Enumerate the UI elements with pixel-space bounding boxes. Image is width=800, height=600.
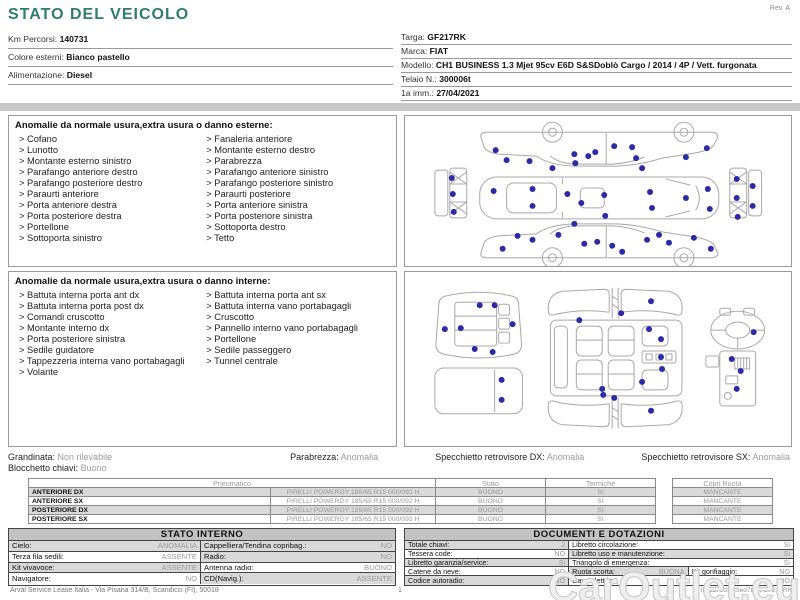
damage-dot: [457, 325, 463, 331]
field-row: Telaio N.: 300006t: [401, 73, 792, 87]
field-pair: Terza fila sedili:ASSENTE: [9, 552, 201, 562]
damage-dot: [529, 237, 535, 243]
cell-label: Navigatore:: [12, 574, 51, 583]
panel-title: Anomalie da normale usura,extra usura o …: [15, 120, 390, 131]
anomaly-item: Portellone: [206, 334, 389, 345]
exterior-anomaly-lists: Cofano Lunotto Montante esterno sinistro…: [15, 134, 390, 244]
damage-dot: [600, 392, 606, 398]
wheel-cover: MANCANTE: [673, 506, 773, 515]
anomaly-item: Porta anteriore destra: [19, 200, 202, 211]
field-row: Alimentazione: Diesel: [8, 67, 393, 85]
summary-stack: Grandinata: Non rilevabile Blocchetto ch…: [8, 452, 233, 473]
damage-dot: [490, 188, 496, 194]
exterior-damage-diagram: [405, 116, 792, 266]
field-row: Modello: CH1 BUSINESS 1.3 Mjet 95cv E6D …: [401, 59, 792, 73]
damage-dot: [690, 235, 696, 241]
interior-anomalies-panel: Anomalie da normale usura,extra usura o …: [8, 271, 397, 447]
vehicle-fields: Km Percorsi: 140731 Colore esterni: Bian…: [8, 31, 792, 101]
cell-label: Cielo:: [12, 541, 31, 550]
damage-dot: [706, 206, 712, 212]
field-label: Modello:: [401, 60, 433, 70]
damage-dot: [609, 243, 615, 249]
damage-dot: [514, 233, 520, 239]
tyre-col-header: Termiche: [546, 479, 656, 488]
damage-dot: [564, 191, 570, 197]
stato-interno-table: STATO INTERNO Cielo:ANOMALIA Cappelliera…: [8, 528, 396, 586]
summary-value: Buono: [81, 463, 107, 473]
damage-dot: [682, 154, 688, 160]
table-row: Tessera code:NO Libretto uso e manutenzi…: [405, 550, 793, 559]
condition-summary: Grandinata: Non rilevabile Blocchetto ch…: [0, 447, 800, 473]
damage-dot: [571, 151, 577, 157]
interior-anomaly-col2: Battuta interna porta ant sx Battuta int…: [202, 290, 389, 378]
revision-label: Rev. A: [770, 5, 790, 12]
tyre-col-header: Copri Ruota: [673, 479, 773, 488]
anomaly-item: Fanaleria anteriore: [206, 134, 389, 145]
table-row: Terza fila sedili:ASSENTE Radio:NO: [9, 552, 395, 563]
field-pair: Cappelliera/Tendina copribag.:NO: [201, 541, 395, 551]
tyre-status: BUONO: [436, 497, 546, 506]
damage-dot: [749, 203, 755, 209]
cell-label: Catene da neve:: [408, 567, 461, 575]
damage-dot: [448, 175, 454, 181]
cell-value: NO: [550, 576, 565, 585]
damage-dot: [601, 192, 607, 198]
cell-label: Libretto uso e manutenzione:: [572, 550, 665, 558]
tyre-spec: PIRELLI POWERGY 185/65 R15 000/092 H: [271, 497, 436, 506]
exterior-anomaly-col1: Cofano Lunotto Montante esterno sinistro…: [15, 134, 202, 244]
tyre-table: Pneumatico Stato Termiche ANTERIORE DX P…: [28, 478, 772, 524]
damage-dot: [491, 302, 497, 308]
cell-label: Tessera code:: [408, 550, 453, 558]
damage-dot: [476, 302, 482, 308]
cell-label: Radio:: [204, 552, 226, 561]
summary-label: Blocchetto chiavi:: [8, 463, 78, 473]
damage-dot: [750, 329, 756, 335]
cell-value: NO: [775, 576, 790, 585]
damage-dot: [498, 397, 504, 403]
page-title: STATO DEL VEICOLO: [8, 6, 792, 24]
field-value: 27/04/2021: [436, 88, 479, 98]
anomaly-item: Battuta interna vano portabagagli: [206, 301, 389, 312]
damage-dot: [733, 176, 739, 182]
field-pair: Navigatore:NO: [9, 573, 201, 584]
damage-dot: [629, 144, 635, 150]
panel-title: Anomalie da normale usura,extra usura o …: [15, 276, 390, 287]
anomaly-item: Montante interno dx: [19, 323, 202, 334]
tyre-spec: PIRELLI POWERGY 185/65 R15 000/092 H: [271, 515, 436, 524]
summary-label: Grandinata:: [8, 452, 55, 462]
tyre-table-main: Pneumatico Stato Termiche ANTERIORE DX P…: [28, 478, 656, 524]
vehicle-condition-report: STATO DEL VEICOLO Rev. A Km Percorsi: 14…: [0, 0, 800, 600]
tyre-status: BUONO: [436, 515, 546, 524]
cell-label: Cappelliera/Tendina copribag.:: [204, 541, 307, 550]
damage-dot: [618, 310, 624, 316]
footer-company: Arval Service Lease Italia - Via Pisana …: [10, 587, 219, 594]
field-value: 140731: [60, 34, 89, 44]
field-label: 1a imm.:: [401, 88, 434, 98]
tyre-spec: PIRELLI POWERGY 185/65 R15 000/092 H: [271, 506, 436, 515]
cell-value: NO: [182, 574, 197, 583]
cell-value: ANOMALIA: [154, 541, 197, 550]
summary-item: Blocchetto chiavi: Buono: [8, 463, 233, 474]
damage-dot: [489, 349, 495, 355]
anomaly-item: Parafango posteriore sinistro: [206, 178, 389, 189]
field-pair: Codice autoradio:NO: [405, 576, 569, 585]
cell-value: NO: [550, 550, 565, 558]
damage-dot: [682, 195, 688, 201]
cell-label: Libretto circolazione:: [572, 541, 638, 549]
damage-dot: [509, 321, 515, 327]
exterior-diagram-box: [404, 115, 793, 267]
damage-dot: [648, 298, 654, 304]
cell-value: BUONA: [655, 567, 685, 575]
field-row: 1a imm.: 27/04/2021: [401, 87, 792, 101]
field-row: Colore esterni: Bianco pastello: [8, 49, 393, 67]
bottom-tables: STATO INTERNO Cielo:ANOMALIA Cappelliera…: [8, 528, 792, 586]
anomaly-item: Parabrezza: [206, 156, 389, 167]
field-value: 300006t: [439, 74, 471, 84]
damage-dot: [572, 160, 578, 166]
damage-dot: [639, 379, 645, 385]
anomaly-item: Comandi cruscotto: [19, 312, 202, 323]
section-title: STATO INTERNO: [9, 529, 395, 541]
interior-diagram-box: [404, 271, 793, 447]
damage-dot: [633, 155, 639, 161]
cell-value: NO: [775, 567, 790, 575]
anomaly-item: Parafango anteriore sinistro: [206, 167, 389, 178]
damage-dot: [529, 186, 535, 192]
anomaly-item: Tunnel centrale: [206, 356, 389, 367]
damage-dot: [733, 195, 739, 201]
documenti-dotazioni-table: DOCUMENTI E DOTAZIONI Totale chiavi:2 Li…: [404, 528, 794, 586]
summary-item: Specchietto retrovisore DX: Anomalia: [435, 452, 584, 473]
damage-dot: [646, 326, 652, 332]
damage-dot: [571, 221, 577, 227]
cell-value: NO: [550, 567, 565, 575]
field-pair: Cielo:ANOMALIA: [9, 541, 201, 551]
field-pair: Kit gonfiaggio:NO: [689, 567, 793, 575]
wheel-cover: MANCANTE: [673, 497, 773, 506]
interior-anomaly-lists: Battuta interna porta ant dx Battuta int…: [15, 290, 390, 378]
anomaly-item: Cofano: [19, 134, 202, 145]
cell-value: Si: [555, 559, 565, 567]
field-pair: Libretto garanzia/service:Si: [405, 559, 569, 567]
field-pair: Ruota scorta:BUONA: [569, 567, 688, 575]
anomaly-item: Porta posteriore sinistra: [19, 334, 202, 345]
interior-anomaly-col1: Battuta interna porta ant dx Battuta int…: [15, 290, 202, 378]
field-pair: Tessera code:NO: [405, 550, 569, 558]
wheel-cover: MANCANTE: [673, 488, 773, 497]
cell-value: Si: [780, 559, 790, 567]
summary-value: Anomalia: [341, 452, 379, 462]
cell-value: BUONO: [360, 563, 392, 572]
damage-dot: [659, 366, 665, 372]
field-value: CH1 BUSINESS 1.3 Mjet 95cv E6D S&SDoblò …: [436, 60, 757, 70]
field-row: Km Percorsi: 140731: [8, 31, 393, 49]
damage-dot: [647, 189, 653, 195]
anomaly-item: Battuta interna porta post dx: [19, 301, 202, 312]
field-pair: Catene da neve:NO: [405, 567, 569, 575]
summary-value: Non rilevabile: [58, 452, 113, 462]
cell-label: Cavo elettrico:: [572, 576, 618, 585]
cell-label: Terza fila sedili:: [12, 552, 64, 561]
cell-value: Si: [780, 541, 790, 549]
field-label: Marca:: [401, 46, 427, 56]
damage-dot: [602, 213, 608, 219]
anomaly-item: Parafango posteriore destro: [19, 178, 202, 189]
anomaly-item: Sottoporta sinistro: [19, 233, 202, 244]
exterior-anomalies-panel: Anomalie da normale usura,extra usura o …: [8, 115, 397, 267]
cell-value: ASSENTE: [158, 563, 197, 572]
anomaly-item: Cruscotto: [206, 312, 389, 323]
cell-label: Triangolo di emergenza:: [572, 559, 649, 567]
damage-dot: [707, 246, 713, 252]
anomaly-item: Battuta interna porta ant sx: [206, 290, 389, 301]
tyre-table-wheelcover: Copri Ruota MANCANTE MANCANTE MANCANTE M…: [672, 478, 773, 524]
damage-dot: [728, 356, 734, 362]
damage-dot: [649, 205, 655, 211]
main-content: Anomalie da normale usura,extra usura o …: [0, 111, 800, 447]
exterior-damage-dots: [448, 143, 755, 255]
anomaly-item: Pannello interno vano portabagagli: [206, 323, 389, 334]
summary-item: Grandinata: Non rilevabile: [8, 452, 233, 463]
cell-label: Kit gonfiaggio:: [692, 567, 738, 575]
diagram-column: [404, 115, 793, 447]
anomaly-lists-column: Anomalie da normale usura,extra usura o …: [8, 115, 397, 447]
table-row: Libretto garanzia/service:Si Triangolo d…: [405, 559, 793, 568]
cell-value: 2: [557, 541, 565, 549]
anomaly-item: Sedile guidatore: [19, 345, 202, 356]
tyre-spec: PIRELLI POWERGY 185/65 R15 000/092 H: [271, 488, 436, 497]
field-pair: CD(Navig.):ASSENTE: [201, 573, 395, 584]
field-value: Diesel: [67, 70, 92, 80]
damage-dot: [619, 249, 625, 255]
damage-dot: [441, 326, 447, 332]
tyre-position: ANTERIORE DX: [29, 488, 271, 497]
table-row: Totale chiavi:2 Libretto circolazione:Si: [405, 541, 793, 550]
damage-dot: [611, 395, 617, 401]
vehicle-fields-right: Targa: GF217RK Marca: FIAT Modello: CH1 …: [401, 31, 792, 101]
anomaly-item: Tappezzeria interna vano portabagagli: [19, 356, 202, 367]
damage-dot: [611, 143, 617, 149]
anomaly-item: Porta posteriore sinistra: [206, 211, 389, 222]
report-header: STATO DEL VEICOLO Rev. A Km Percorsi: 14…: [0, 0, 800, 101]
field-value: Bianco pastello: [66, 52, 130, 62]
damage-dot: [704, 186, 710, 192]
table-row: Catene da neve:NO Ruota scorta:BUONA Kit…: [405, 567, 793, 576]
cell-value: ASSENTE: [353, 574, 392, 583]
damage-dot: [526, 158, 532, 164]
damage-dot: [592, 149, 598, 155]
field-pair: Libretto circolazione:Si: [569, 541, 793, 549]
cell-value: Si: [780, 550, 790, 558]
tyre-thermal: SI: [546, 506, 656, 515]
cell-label: Totale chiavi:: [408, 541, 450, 549]
field-label: Km Percorsi:: [8, 34, 57, 44]
field-label: Alimentazione:: [8, 70, 64, 80]
cell-label: Libretto garanzia/service:: [408, 559, 488, 567]
anomaly-item: Montante esterno destro: [206, 145, 389, 156]
footer-document-id: ID 1278d3.25ed7b3 , GF217RK: [701, 587, 792, 594]
tyre-thermal: SI: [546, 497, 656, 506]
damage-dot: [665, 240, 671, 246]
anomaly-item: Tetto: [206, 233, 389, 244]
damage-dot: [734, 214, 740, 220]
damage-dot: [498, 377, 504, 383]
cell-value: NO: [377, 552, 392, 561]
field-pair: Kit vivavoce:ASSENTE: [9, 563, 201, 573]
damage-dot: [749, 183, 755, 189]
damage-dot: [471, 346, 477, 352]
field-pair: Libretto uso e manutenzione:Si: [569, 550, 793, 558]
field-row: Targa: GF217RK: [401, 31, 792, 45]
damage-dot: [503, 157, 509, 163]
tyre-thermal: SI: [546, 515, 656, 524]
tyre-position: POSTERIORE DX: [29, 506, 271, 515]
wheel-cover: MANCANTE: [673, 515, 773, 524]
exterior-anomaly-col2: Fanaleria anteriore Montante esterno des…: [202, 134, 389, 244]
footer-page-number: 1: [398, 587, 402, 594]
summary-value: Anomalia: [547, 452, 585, 462]
summary-label: Specchietto retrovisore DX:: [435, 452, 545, 462]
damage-dot: [449, 191, 455, 197]
damage-dot: [703, 145, 709, 151]
damage-dot: [581, 241, 587, 247]
field-pair: Antenna radio:BUONO: [201, 563, 395, 573]
summary-value: Anomalia: [752, 452, 790, 462]
damage-dot: [578, 200, 584, 206]
tyre-status: BUONO: [436, 506, 546, 515]
field-pair: Totale chiavi:2: [405, 541, 569, 549]
damage-dot: [576, 317, 582, 323]
anomaly-item: Porta anteriore sinistra: [206, 200, 389, 211]
field-label: Colore esterni:: [8, 52, 64, 62]
field-pair: Radio:NO: [201, 552, 395, 562]
summary-item: Parabrezza: Anomalia: [290, 452, 378, 473]
damage-dot: [549, 165, 555, 171]
cell-label: Ruota scorta:: [572, 567, 615, 575]
section-divider-bar: [0, 103, 800, 111]
cell-value: ASSENTE: [158, 552, 197, 561]
anomaly-item: Battuta interna porta ant dx: [19, 290, 202, 301]
table-row: Codice autoradio:NO Cavo elettrico:NO: [405, 576, 793, 585]
summary-label: Parabrezza:: [290, 452, 339, 462]
cell-value: NO: [377, 541, 392, 550]
summary-item: Specchietto retrovisore SX: Anomalia: [641, 452, 790, 473]
anomaly-item: Volante: [19, 367, 202, 378]
damage-dot: [499, 246, 505, 252]
damage-dot: [644, 237, 650, 243]
damage-dot: [594, 239, 600, 245]
damage-dot: [639, 165, 645, 171]
tyre-position: POSTERIORE SX: [29, 515, 271, 524]
anomaly-item: Montante esterno sinistro: [19, 156, 202, 167]
cell-label: CD(Navig.):: [204, 574, 244, 583]
damage-dot: [658, 354, 664, 360]
table-row: Navigatore:NO CD(Navig.):ASSENTE: [9, 573, 395, 584]
field-value: FIAT: [430, 46, 448, 56]
tyre-col-header: Pneumatico: [29, 479, 436, 488]
damage-dot: [585, 153, 591, 159]
section-title: DOCUMENTI E DOTAZIONI: [405, 529, 793, 541]
field-pair: Cavo elettrico:NO: [569, 576, 793, 585]
tyre-col-header: Stato: [436, 479, 546, 488]
anomaly-item: Sedile passeggero: [206, 345, 389, 356]
anomaly-item: Parafango anteriore destro: [19, 167, 202, 178]
field-label: Telaio N.:: [401, 74, 437, 84]
summary-label: Specchietto retrovisore SX:: [641, 452, 750, 462]
table-row: Kit vivavoce:ASSENTE Antenna radio:BUONO: [9, 563, 395, 574]
damage-dot: [555, 232, 561, 238]
damage-dot: [492, 147, 498, 153]
damage-dot: [648, 408, 654, 414]
tyre-status: BUONO: [436, 488, 546, 497]
damage-dot: [733, 386, 739, 392]
field-pair: Triangolo di emergenza:Si: [569, 559, 793, 567]
vehicle-fields-left: Km Percorsi: 140731 Colore esterni: Bian…: [8, 31, 393, 101]
damage-dot: [658, 336, 664, 342]
anomaly-item: Porta posteriore destra: [19, 211, 202, 222]
tyre-position: ANTERIORE SX: [29, 497, 271, 506]
field-label: Targa:: [401, 32, 425, 42]
tyre-thermal: SI: [546, 488, 656, 497]
damage-dot: [737, 368, 743, 374]
cell-label: Codice autoradio:: [408, 576, 464, 585]
anomaly-item: Sottoporta destro: [206, 222, 389, 233]
damage-dot: [599, 386, 605, 392]
anomaly-item: Lunotto: [19, 145, 202, 156]
anomaly-item: Paraurti anteriore: [19, 189, 202, 200]
cell-label: Antenna radio:: [204, 563, 253, 572]
damage-dot: [656, 232, 662, 238]
anomaly-item: Portellone: [19, 222, 202, 233]
anomaly-item: Paraurti posteriore: [206, 189, 389, 200]
damage-dot: [529, 203, 535, 209]
cell-label: Kit vivavoce:: [12, 563, 55, 572]
interior-damage-diagram: [405, 272, 792, 446]
table-row: Cielo:ANOMALIA Cappelliera/Tendina copri…: [9, 541, 395, 552]
field-row: Marca: FIAT: [401, 45, 792, 59]
damage-dot: [450, 209, 456, 215]
field-value: GF217RK: [427, 32, 466, 42]
